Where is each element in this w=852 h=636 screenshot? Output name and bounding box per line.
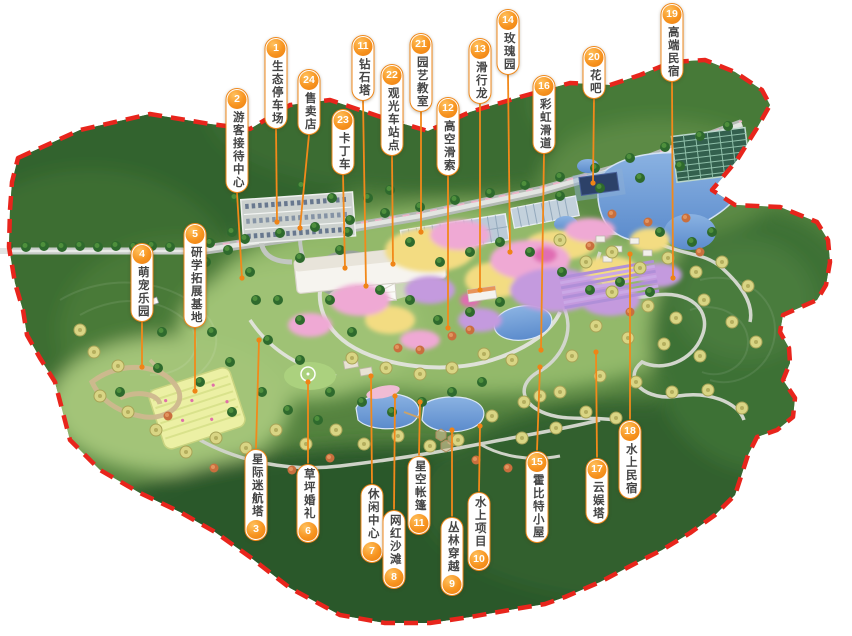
lawn-wedding [284, 362, 336, 390]
park-map: 1生态停车场2游客接待中心24售卖店11钻石塔23卡丁车22观光车站点21园艺教… [0, 0, 852, 636]
parking-lot [241, 192, 356, 244]
map-illustration [0, 0, 852, 636]
